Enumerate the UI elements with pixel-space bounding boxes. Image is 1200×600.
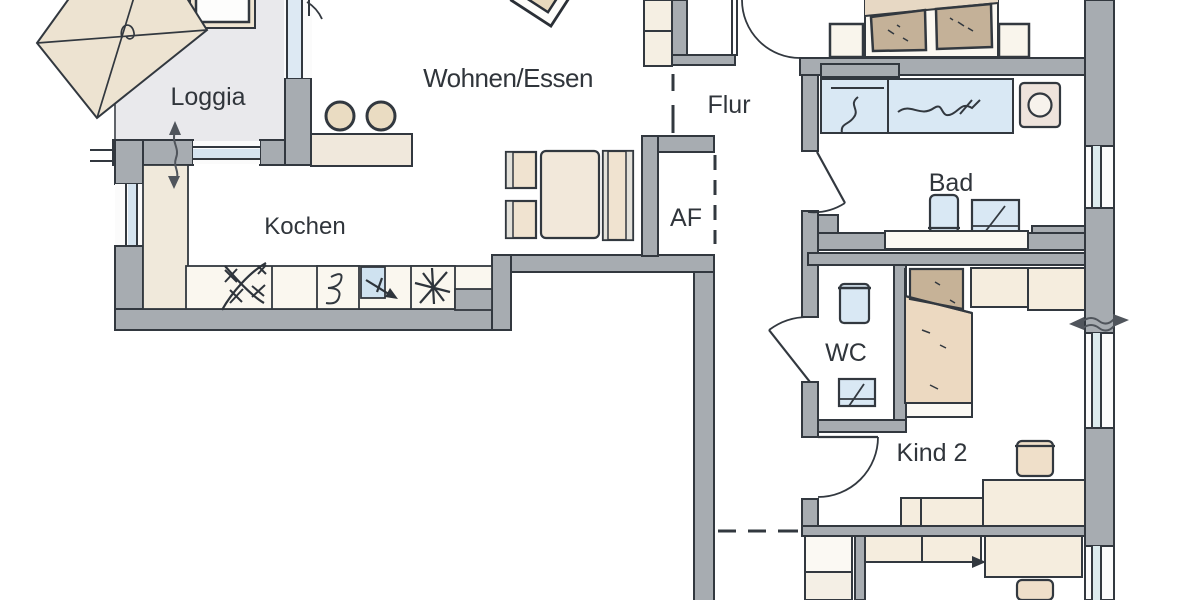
- svg-text:WC: WC: [825, 339, 867, 367]
- svg-text:Kochen: Kochen: [264, 213, 345, 240]
- svg-text:Bad: Bad: [929, 169, 973, 197]
- svg-text:Loggia: Loggia: [170, 83, 245, 111]
- svg-text:Kind 2: Kind 2: [897, 439, 968, 467]
- svg-text:Wohnen/Essen: Wohnen/Essen: [423, 63, 593, 93]
- svg-text:AF: AF: [670, 204, 702, 232]
- svg-text:Flur: Flur: [707, 91, 750, 119]
